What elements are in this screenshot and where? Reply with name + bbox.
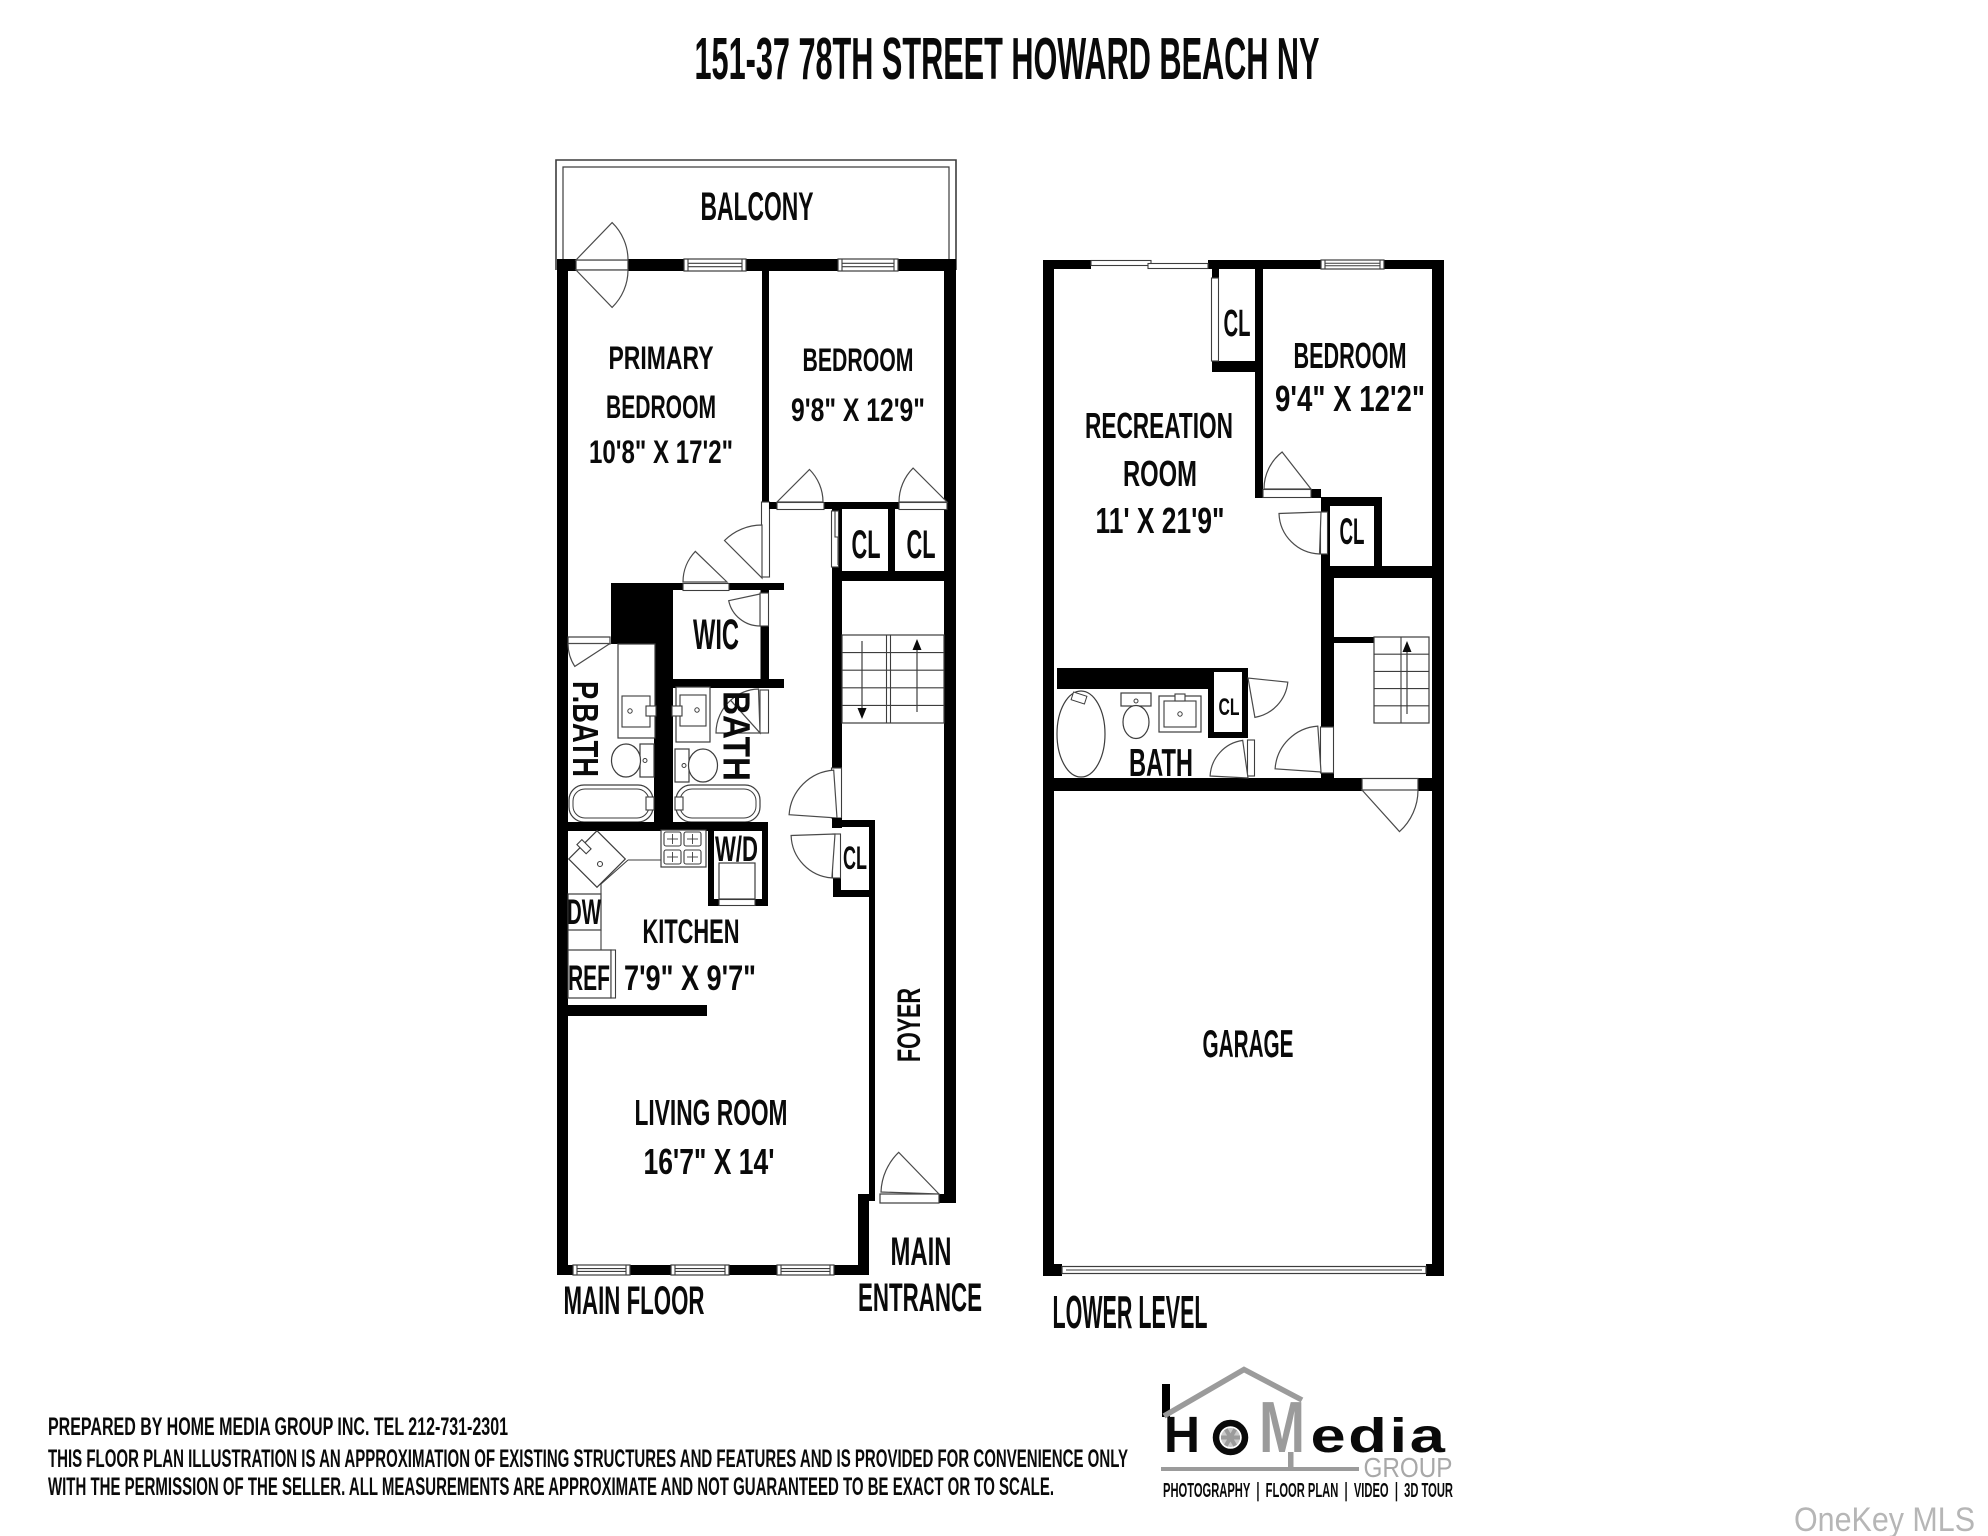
svg-text:OneKey MLS: OneKey MLS bbox=[1794, 1501, 1975, 1536]
svg-text:9'8" X 12'9": 9'8" X 12'9" bbox=[791, 392, 925, 428]
svg-text:CL: CL bbox=[907, 523, 936, 567]
svg-text:M: M bbox=[1259, 1388, 1305, 1468]
svg-text:CL: CL bbox=[843, 840, 867, 876]
svg-text:ROOM: ROOM bbox=[1123, 453, 1197, 494]
svg-text:BATH: BATH bbox=[715, 691, 757, 781]
svg-text:16'7" X 14': 16'7" X 14' bbox=[644, 1141, 775, 1182]
svg-text:W/D: W/D bbox=[715, 830, 758, 869]
svg-text:FOYER: FOYER bbox=[891, 988, 927, 1062]
svg-text:PHOTOGRAPHY | FLOOR PLAN |: PHOTOGRAPHY | FLOOR PLAN | VIDEO | 3D TO… bbox=[1163, 1480, 1453, 1502]
svg-text:CL: CL bbox=[1224, 303, 1251, 345]
svg-text:GROUP: GROUP bbox=[1364, 1452, 1453, 1483]
svg-text:WIC: WIC bbox=[693, 611, 739, 659]
svg-text:BEDROOM: BEDROOM bbox=[803, 342, 914, 378]
svg-text:151-37 78TH STREET HOWARD BEAC: 151-37 78TH STREET HOWARD BEACH NY bbox=[695, 26, 1320, 92]
svg-text:WITH THE PERMISSION OF THE SEL: WITH THE PERMISSION OF THE SELLER. ALL M… bbox=[48, 1473, 1054, 1501]
svg-text:MAIN FLOOR: MAIN FLOOR bbox=[564, 1279, 705, 1323]
svg-text:PREPARED BY HOME MEDIA GROUP: PREPARED BY HOME MEDIA GROUP INC. TEL 21… bbox=[48, 1413, 508, 1441]
svg-text:9'4" X 12'2": 9'4" X 12'2" bbox=[1275, 378, 1425, 419]
svg-text:BEDROOM: BEDROOM bbox=[606, 389, 716, 425]
svg-text:11' X 21'9": 11' X 21'9" bbox=[1096, 500, 1225, 541]
svg-text:ENTRANCE: ENTRANCE bbox=[858, 1276, 982, 1320]
svg-text:BALCONY: BALCONY bbox=[701, 185, 814, 229]
svg-text:LIVING ROOM: LIVING ROOM bbox=[635, 1092, 788, 1133]
svg-text:PRIMARY: PRIMARY bbox=[609, 340, 714, 376]
svg-text:BATH: BATH bbox=[1129, 742, 1193, 785]
svg-text:DW: DW bbox=[567, 893, 601, 932]
svg-text:10'8" X 17'2": 10'8" X 17'2" bbox=[589, 434, 733, 470]
svg-text:7'9" X 9'7": 7'9" X 9'7" bbox=[624, 959, 756, 998]
svg-text:P.BATH: P.BATH bbox=[565, 681, 606, 777]
svg-text:THIS FLOOR PLAN ILLUSTRATION I: THIS FLOOR PLAN ILLUSTRATION IS AN APPRO… bbox=[48, 1445, 1128, 1473]
svg-text:GARAGE: GARAGE bbox=[1203, 1023, 1294, 1066]
svg-text:KITCHEN: KITCHEN bbox=[643, 913, 740, 951]
svg-text:H: H bbox=[1164, 1406, 1200, 1463]
svg-text:CL: CL bbox=[1340, 511, 1365, 552]
svg-text:LOWER LEVEL: LOWER LEVEL bbox=[1053, 1286, 1208, 1338]
svg-text:BEDROOM: BEDROOM bbox=[1294, 335, 1407, 376]
svg-text:CL: CL bbox=[1219, 694, 1240, 721]
svg-text:REF: REF bbox=[568, 959, 610, 998]
svg-text:CL: CL bbox=[852, 523, 881, 567]
svg-text:MAIN: MAIN bbox=[891, 1230, 952, 1274]
svg-text:RECREATION: RECREATION bbox=[1085, 405, 1233, 446]
